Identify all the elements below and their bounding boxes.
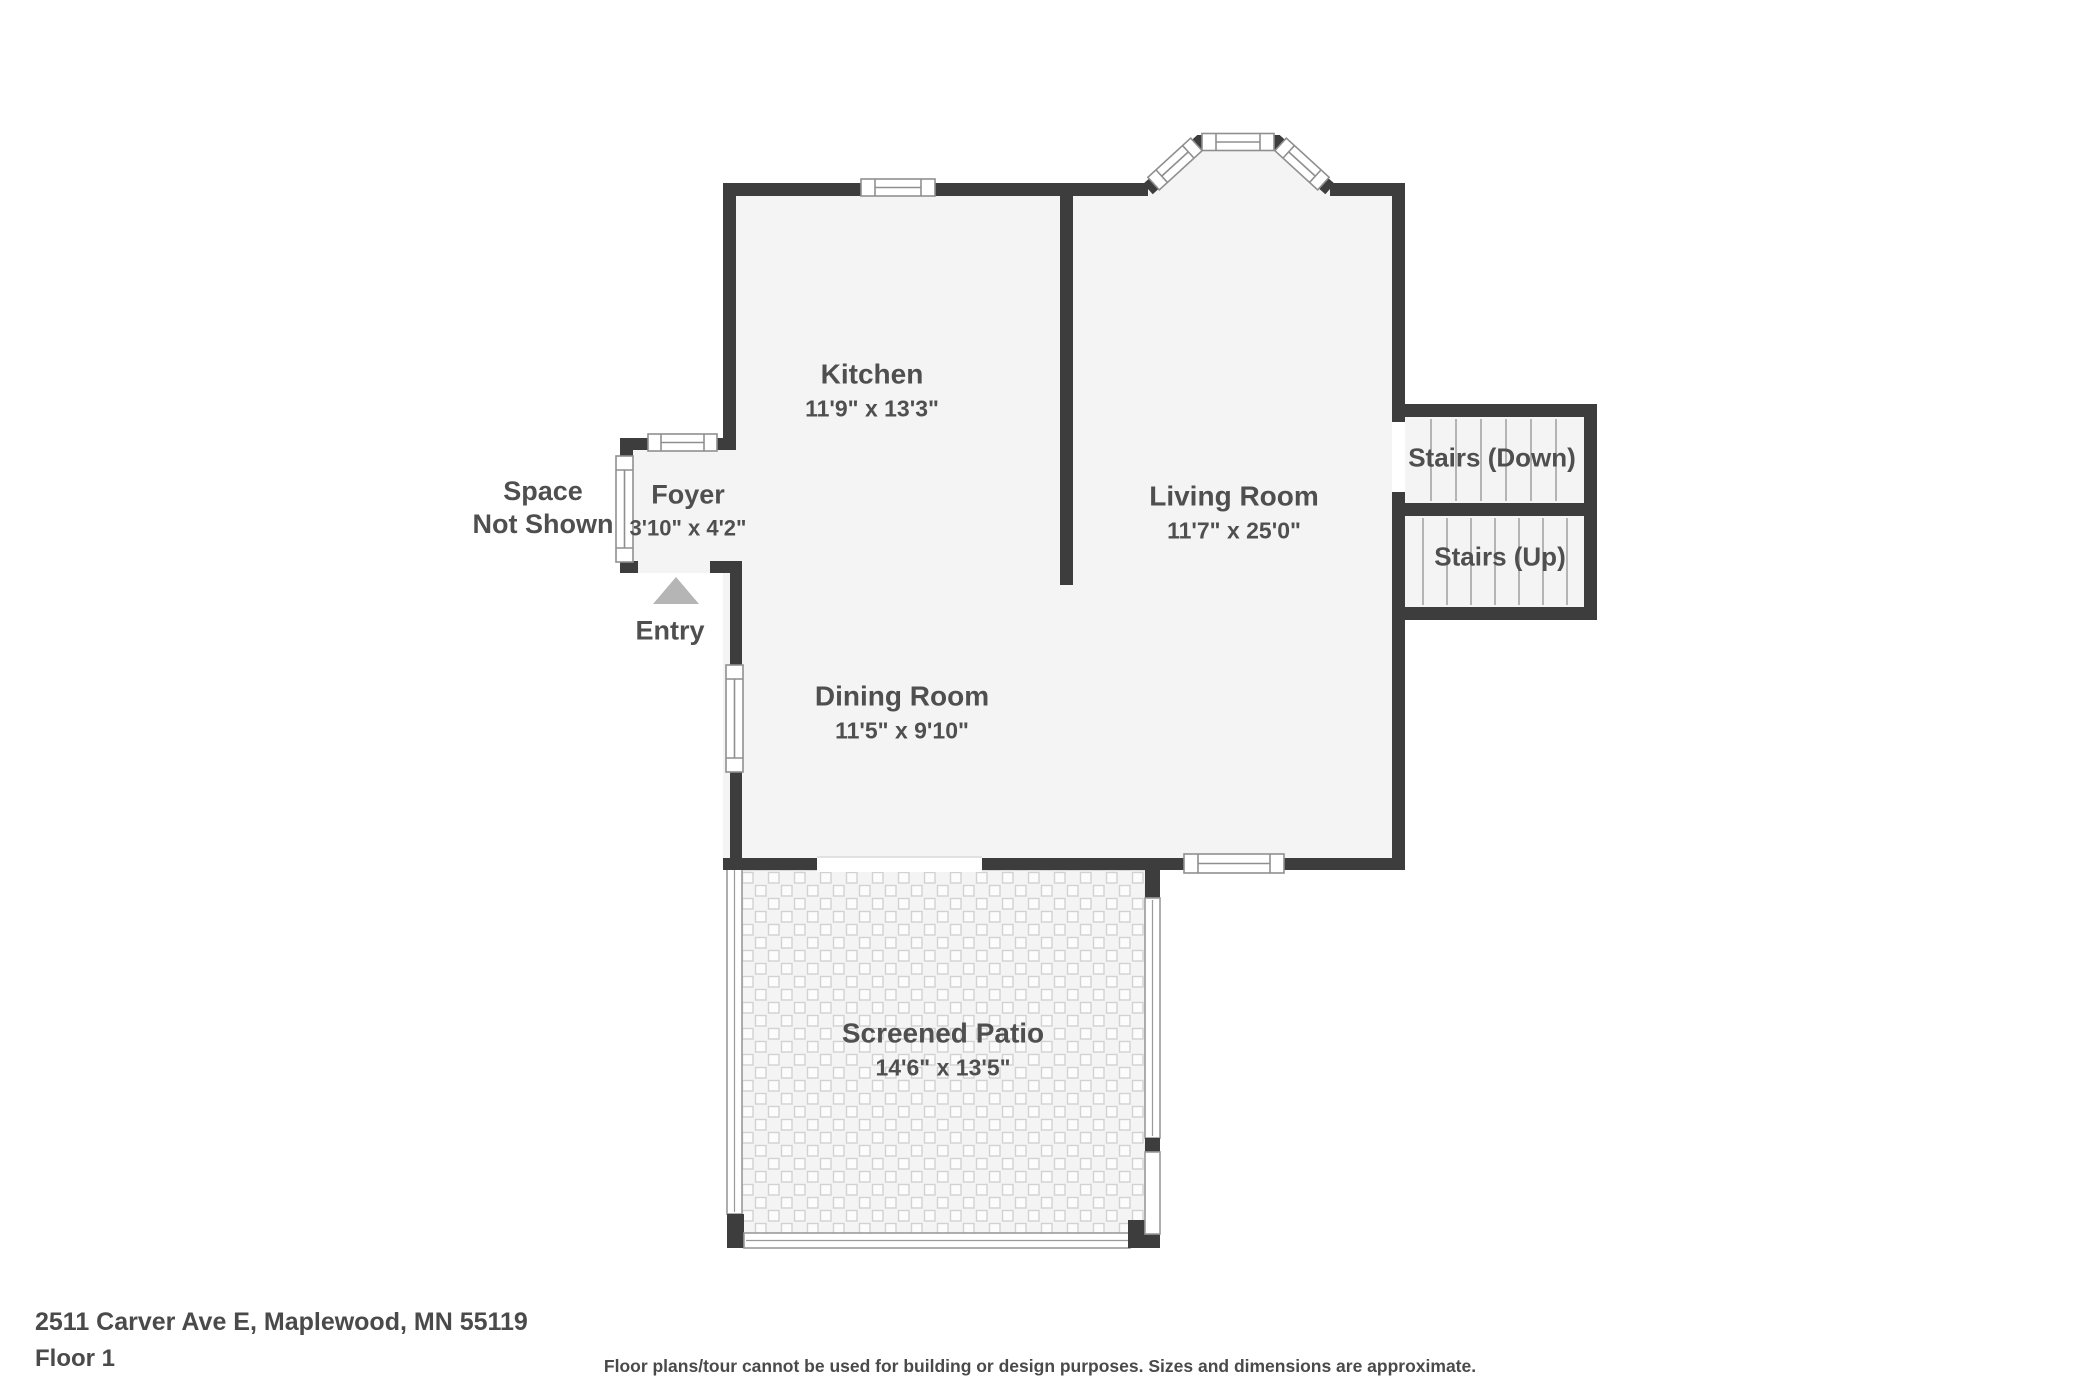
room-name: Dining Room: [815, 678, 989, 715]
room-name: Foyer: [630, 478, 747, 514]
window-foyer-top: [648, 434, 717, 451]
floorplan-canvas: Kitchen 11'9" x 13'3" Living Room 11'7" …: [0, 0, 2080, 1386]
room-label-kitchen: Kitchen 11'9" x 13'3": [805, 356, 939, 423]
space-not-shown-line2: Not Shown: [473, 508, 614, 541]
property-address: 2511 Carver Ave E, Maplewood, MN 55119: [35, 1308, 528, 1337]
patio-corner-post: [727, 1214, 744, 1248]
room-label-living-room: Living Room 11'7" x 25'0": [1149, 478, 1319, 545]
room-label-screened-patio: Screened Patio 14'6" x 13'5": [842, 1015, 1044, 1082]
room-label-dining-room: Dining Room 11'5" x 9'10": [815, 678, 989, 745]
room-name: Screened Patio: [842, 1015, 1044, 1052]
window-kitchen-top: [861, 179, 935, 196]
room-dims: 14'6" x 13'5": [842, 1052, 1044, 1082]
room-label-foyer: Foyer 3'10" x 4'2": [630, 478, 747, 543]
disclaimer-text: Floor plans/tour cannot be used for buil…: [604, 1356, 1476, 1377]
stairs-up-label: Stairs (Up): [1434, 542, 1565, 573]
room-dims: 3'10" x 4'2": [630, 513, 747, 542]
floorplan-drawing: [0, 0, 2080, 1386]
space-not-shown-label: Space Not Shown: [473, 475, 614, 541]
room-name: Living Room: [1149, 478, 1319, 515]
entry-label: Entry: [635, 615, 704, 648]
entry-arrow-icon: [653, 577, 699, 604]
room-dims: 11'5" x 9'10": [815, 715, 989, 745]
stairs-down-label: Stairs (Down): [1408, 443, 1576, 474]
room-dims: 11'9" x 13'3": [805, 393, 939, 423]
room-dims: 11'7" x 25'0": [1149, 515, 1319, 545]
window-living-bottom: [1184, 854, 1284, 873]
room-name: Kitchen: [805, 356, 939, 393]
floor-number-label: Floor 1: [35, 1345, 115, 1373]
window-dining-left: [726, 665, 743, 772]
window-bay-top: [1202, 134, 1274, 151]
space-not-shown-line1: Space: [473, 475, 614, 508]
